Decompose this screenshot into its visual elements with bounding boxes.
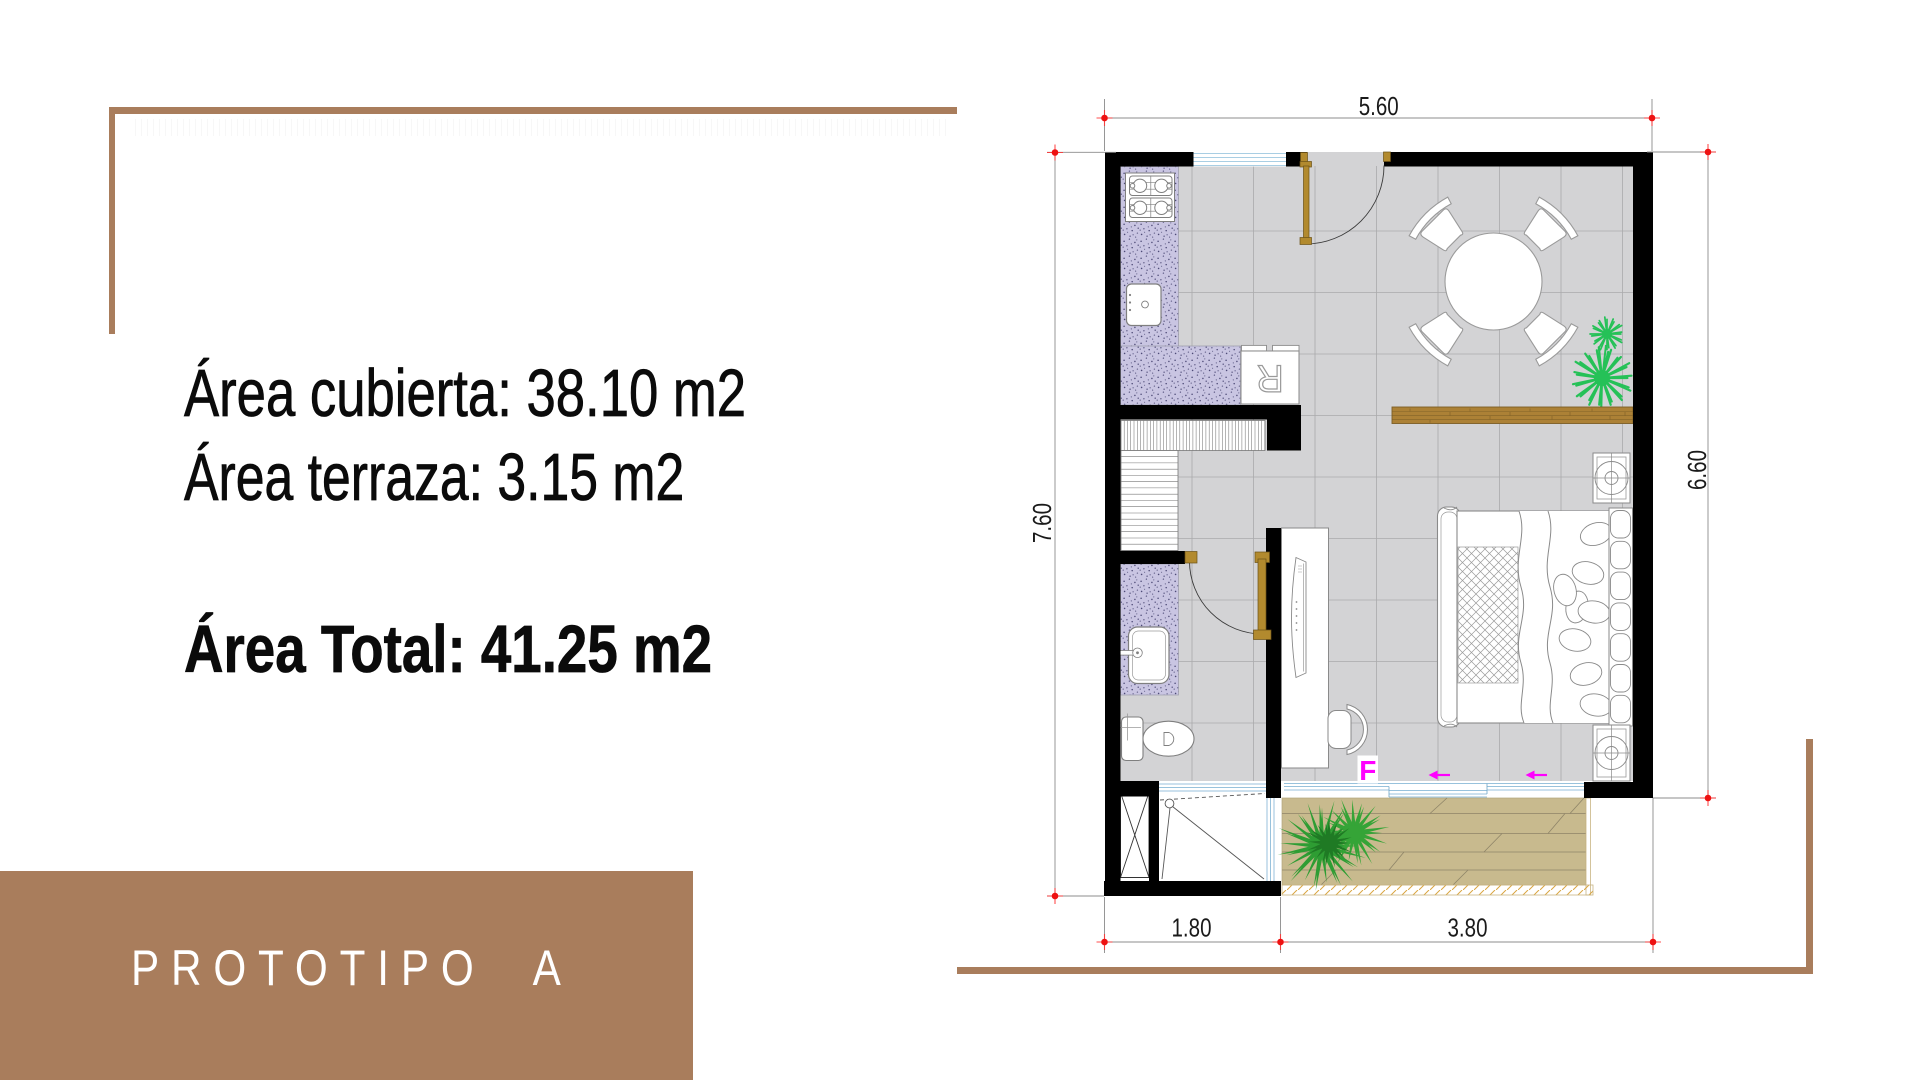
svg-text:7.60: 7.60 [1027,503,1057,543]
svg-text:3.80: 3.80 [1448,913,1488,943]
svg-text:F: F [1359,755,1376,786]
svg-text:6.60: 6.60 [1682,450,1712,490]
svg-text:R: R [1256,357,1283,399]
svg-text:5.60: 5.60 [1359,91,1399,121]
svg-text:1.80: 1.80 [1172,913,1212,943]
